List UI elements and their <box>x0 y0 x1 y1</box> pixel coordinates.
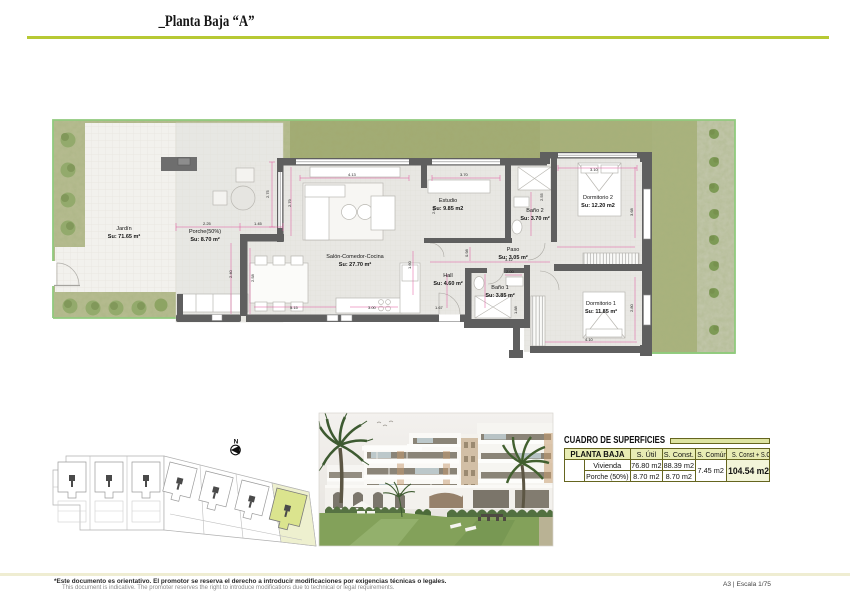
svg-text:Su: 9.85 m2: Su: 9.85 m2 <box>433 206 464 212</box>
svg-text:2.40: 2.40 <box>228 269 233 278</box>
svg-text:Hall: Hall <box>443 273 452 279</box>
svg-text:4.13: 4.13 <box>348 172 357 177</box>
svg-text:Su: 11.85 m²: Su: 11.85 m² <box>585 308 617 315</box>
svg-text:Su: 3.85 m²: Su: 3.85 m² <box>485 292 515 299</box>
svg-text:Su: 71.65 m²: Su: 71.65 m² <box>108 233 141 240</box>
svg-text:0.98: 0.98 <box>464 248 469 257</box>
svg-text:2.75: 2.75 <box>265 189 270 198</box>
svg-text:Su: 27.70 m²: Su: 27.70 m² <box>339 261 372 268</box>
svg-text:3.70: 3.70 <box>460 172 469 177</box>
svg-text:Baño 1: Baño 1 <box>491 285 508 291</box>
svg-text:Su: 3.70 m²: Su: 3.70 m² <box>520 215 550 222</box>
svg-text:3.10: 3.10 <box>590 167 599 172</box>
svg-text:Estudio: Estudio <box>439 198 457 204</box>
svg-text:Jardín: Jardín <box>116 226 131 232</box>
svg-text:N: N <box>234 439 239 446</box>
svg-text:3.00: 3.00 <box>368 305 377 310</box>
svg-text:2.25: 2.25 <box>203 221 212 226</box>
svg-text:2.00: 2.00 <box>506 269 515 274</box>
svg-text:3.68: 3.68 <box>629 207 634 216</box>
svg-text:Su: 3.05 m²: Su: 3.05 m² <box>498 254 528 261</box>
svg-text:5.15: 5.15 <box>290 305 299 310</box>
svg-text:Su: 12.20 m2: Su: 12.20 m2 <box>581 203 615 209</box>
svg-text:4.10: 4.10 <box>585 337 594 342</box>
svg-text:2.80: 2.80 <box>629 303 634 312</box>
svg-text:2.55: 2.55 <box>539 192 544 201</box>
svg-text:1.88: 1.88 <box>513 305 518 314</box>
svg-text:Porche(50%): Porche(50%) <box>189 229 221 235</box>
svg-text:Su: 4.60 m²: Su: 4.60 m² <box>433 280 463 287</box>
svg-text:2.58: 2.58 <box>250 273 255 282</box>
svg-text:2.79: 2.79 <box>287 198 292 207</box>
svg-text:Baño 2: Baño 2 <box>526 208 543 214</box>
svg-text:Dormitorio 1: Dormitorio 1 <box>586 301 616 307</box>
svg-text:Su: 8.70 m²: Su: 8.70 m² <box>190 236 220 243</box>
svg-text:Dormitorio 2: Dormitorio 2 <box>583 195 613 201</box>
svg-text:1.45: 1.45 <box>254 221 263 226</box>
svg-text:Salón-Comedor-Cocina: Salón-Comedor-Cocina <box>326 254 384 260</box>
svg-text:1.67: 1.67 <box>435 305 444 310</box>
svg-text:Paso: Paso <box>507 247 520 253</box>
svg-text:1.60: 1.60 <box>407 260 412 269</box>
